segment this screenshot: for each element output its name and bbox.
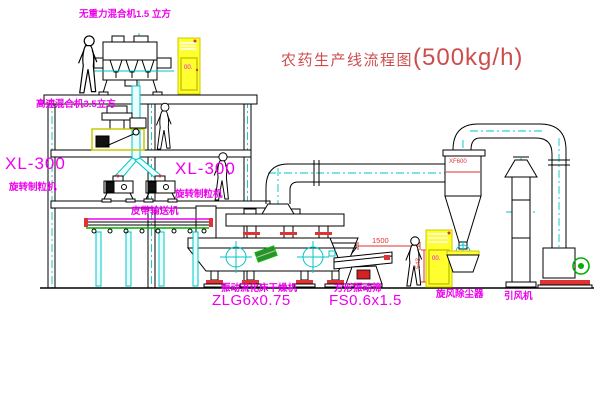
exhaust-stack [505, 157, 537, 287]
label-granulator-right: 旋转制粒机 [175, 190, 223, 200]
induced-draft-fan [538, 248, 592, 288]
cyclone-collector [447, 251, 479, 272]
gravity-free-mixer [88, 36, 174, 95]
y-pipe [113, 158, 164, 178]
label-high-speed-mixer: 高速混合机3.5立方 [36, 100, 116, 110]
granulator-right [144, 175, 177, 203]
label-gravity-free-mixer: 无重力混合机1.5 立方 [79, 10, 171, 20]
conveyor-leg [96, 232, 101, 286]
label-granulator-left: 旋转制粒机 [9, 183, 57, 193]
label-screen-model: FS0.6x1.5 [329, 293, 402, 309]
page-title: 农药生产线流程图 (500kg/h) [281, 44, 523, 72]
title-text: 农药生产线流程图 [281, 49, 413, 70]
cabinet2-mark: 00. [432, 256, 440, 262]
granulator-left [102, 175, 135, 203]
label-xl300-left: XL-300 [5, 155, 66, 173]
label-xl300-right: XL-300 [175, 160, 236, 178]
label-fan: 引风机 [504, 292, 533, 302]
title-capacity: (500kg/h) [413, 44, 523, 72]
cyclone-separator [443, 150, 485, 272]
dimension-height: 543 [416, 258, 423, 269]
label-cyclone: 旋风除尘器 [436, 290, 484, 300]
dryer-to-cyclone-duct [266, 164, 445, 204]
dimension-length: 1500 [372, 237, 389, 245]
conveyor-leg [159, 232, 164, 286]
conveyor-leg [126, 232, 131, 286]
person-figure-2 [156, 103, 171, 149]
conveyor-leg [193, 232, 198, 286]
screen-motor [357, 270, 370, 279]
label-dryer-model: ZLG6x0.75 [212, 293, 291, 309]
cyclone-tag: XF600 [449, 159, 467, 165]
cabinet1-mark: 00. [184, 65, 192, 71]
diagram-canvas: 农药生产线流程图 (500kg/h) 无重力混合机1.5 立方 高速混合机3.5… [0, 0, 600, 403]
label-belt-conveyor: 皮带输送机 [131, 207, 179, 217]
